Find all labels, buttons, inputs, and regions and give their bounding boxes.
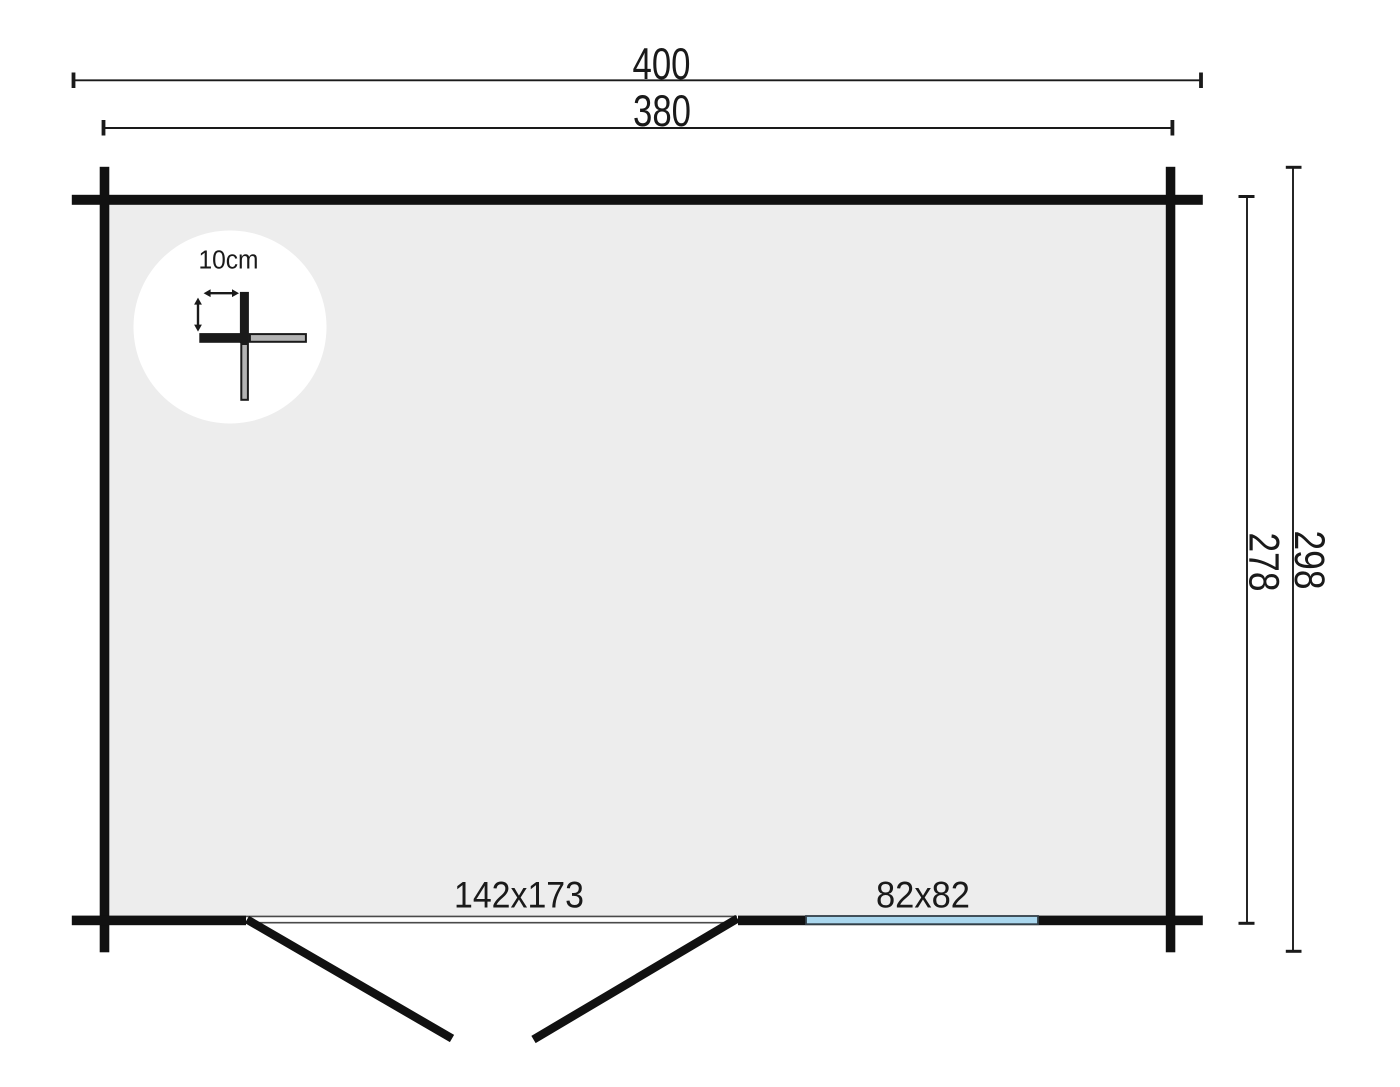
- svg-text:10cm: 10cm: [199, 245, 259, 275]
- svg-text:142x173: 142x173: [454, 873, 584, 915]
- svg-text:400: 400: [633, 40, 691, 89]
- svg-text:82x82: 82x82: [876, 874, 970, 916]
- svg-text:278: 278: [1240, 533, 1288, 592]
- svg-text:380: 380: [633, 87, 691, 136]
- svg-text:298: 298: [1285, 531, 1333, 590]
